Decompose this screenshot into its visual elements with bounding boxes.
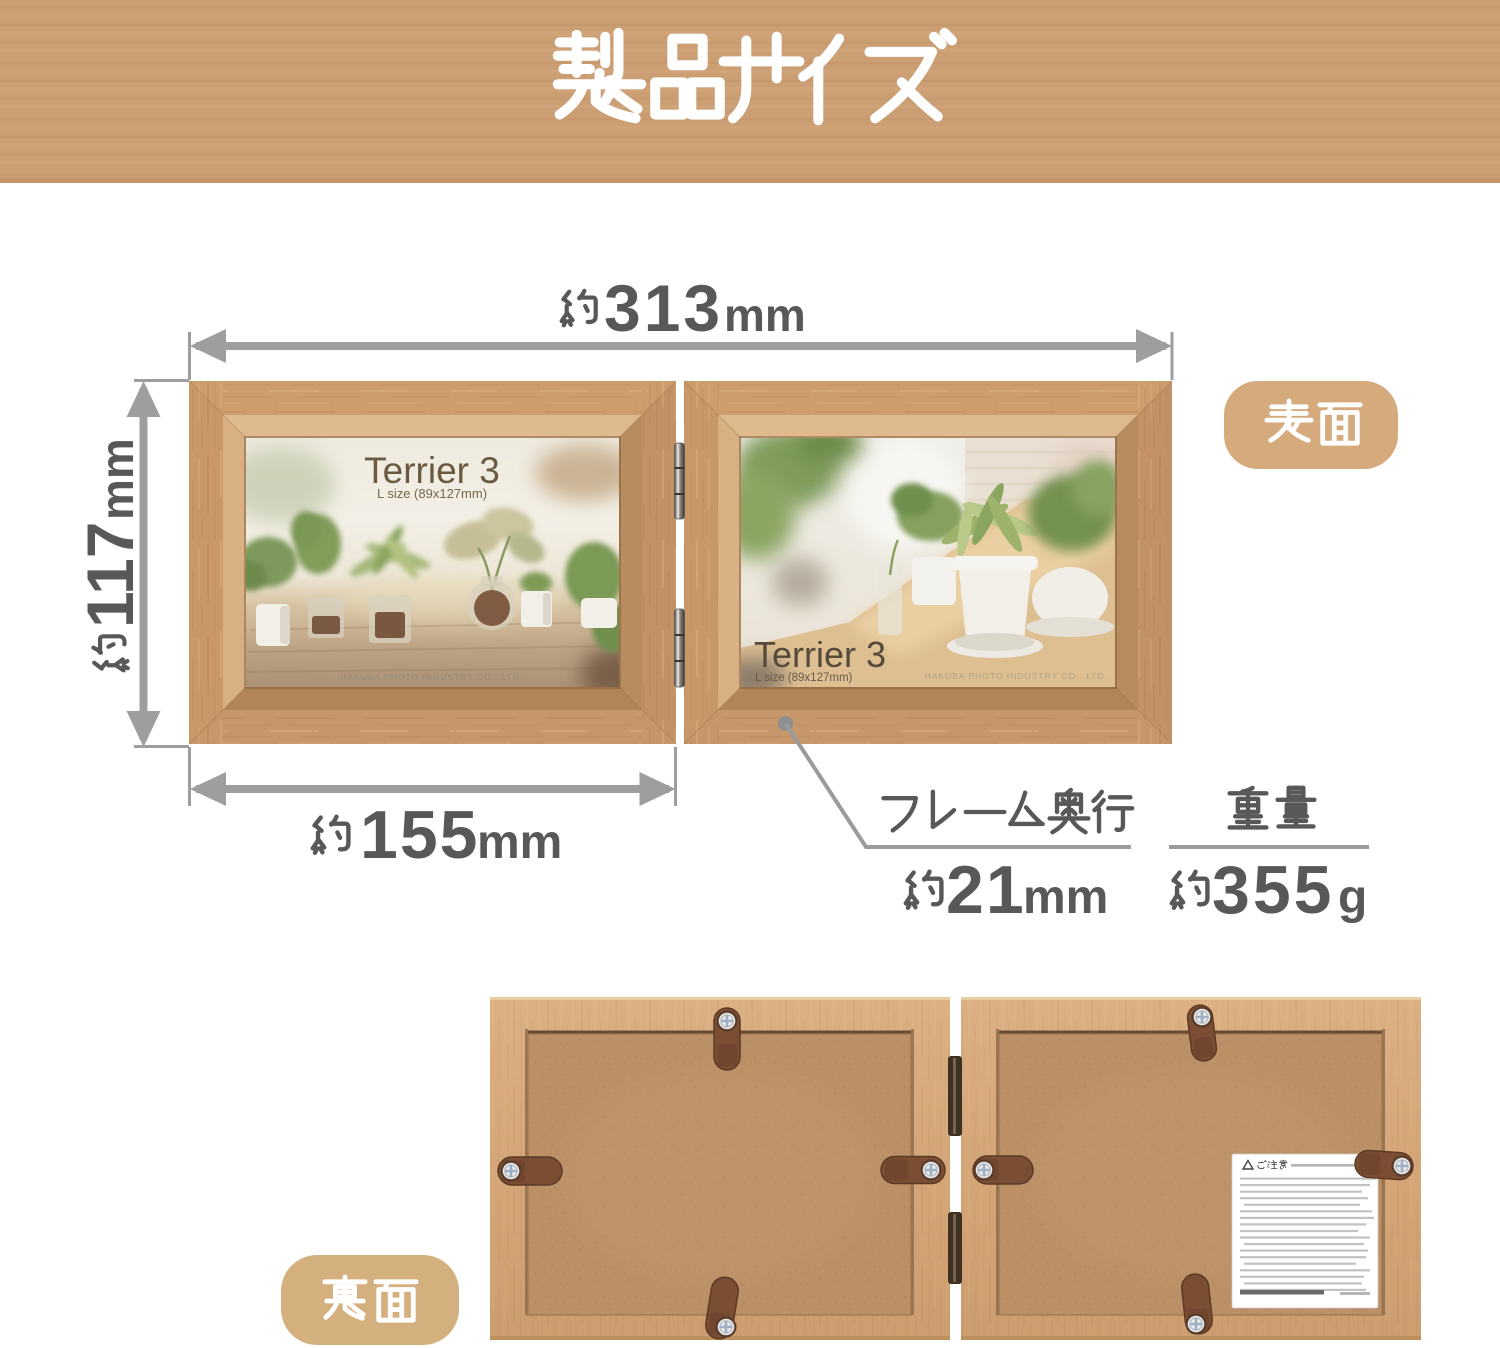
svg-text:HAKUBA PHOTO INDUSTRY CO., LTD: HAKUBA PHOTO INDUSTRY CO., LTD. — [925, 671, 1108, 681]
svg-text:mm: mm — [724, 289, 806, 341]
svg-text:355: 355 — [1212, 852, 1334, 928]
svg-text:mm: mm — [1023, 871, 1108, 924]
svg-text:155: 155 — [360, 797, 479, 873]
svg-text:HAKUBA PHOTO INDUSTRY CO., LTD: HAKUBA PHOTO INDUSTRY CO., LTD. — [340, 672, 523, 682]
svg-text:313: 313 — [604, 271, 723, 345]
svg-text:L size (89x127mm): L size (89x127mm) — [377, 486, 487, 501]
svg-text:117: 117 — [73, 522, 147, 628]
svg-text:g: g — [1338, 871, 1367, 924]
svg-text:Terrier 3: Terrier 3 — [754, 634, 886, 675]
svg-text:21: 21 — [946, 852, 1026, 928]
svg-text:mm: mm — [477, 816, 562, 869]
svg-text:mm: mm — [91, 438, 143, 520]
svg-text:Terrier 3: Terrier 3 — [364, 450, 500, 491]
svg-text:L size (89x127mm): L size (89x127mm) — [755, 672, 853, 684]
